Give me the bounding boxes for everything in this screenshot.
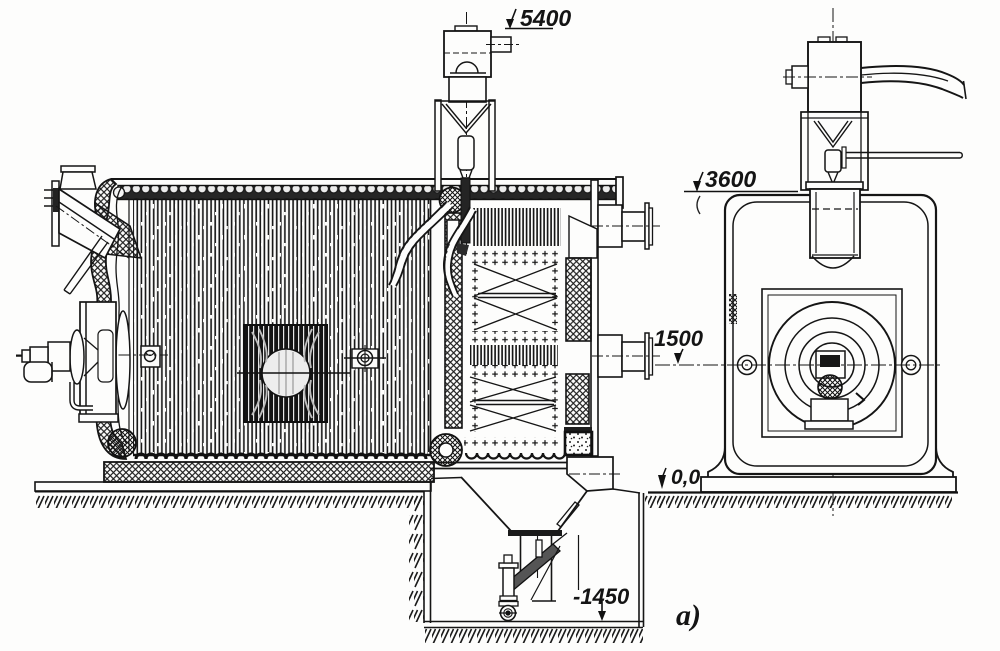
svg-text:3600: 3600	[705, 166, 756, 192]
svg-text:0,0: 0,0	[671, 466, 701, 489]
svg-text:1500: 1500	[654, 326, 704, 351]
svg-text:а): а)	[676, 599, 701, 632]
svg-text:5400: 5400	[520, 5, 571, 31]
